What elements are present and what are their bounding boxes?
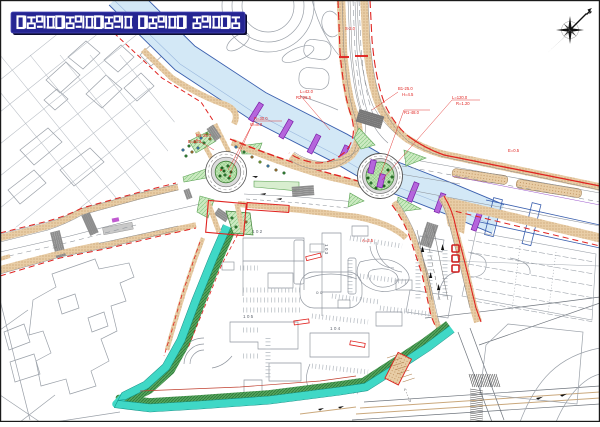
svg-text:R1-35.0: R1-35.0 [196,133,212,138]
svg-text:E=0.5: E=0.5 [508,148,520,153]
svg-text:R=1.20: R=1.20 [456,101,470,106]
svg-text:R=30.0: R=30.0 [254,116,268,121]
svg-text:1 0 2: 1 0 2 [252,229,263,234]
svg-text:1 0 5: 1 0 5 [243,314,254,319]
svg-text:o o: o o [316,290,323,295]
svg-text:L=120.0: L=120.0 [452,95,468,100]
svg-text:R1-48.0: R1-48.0 [404,110,420,115]
svg-text:S-2.0: S-2.0 [345,26,356,31]
svg-text:A=3.5: A=3.5 [362,238,374,243]
svg-text:L=42.0: L=42.0 [300,89,314,94]
svg-text:1 0 3: 1 0 3 [324,244,329,255]
svg-text:H=4.5: H=4.5 [402,92,414,97]
svg-text:B1-25.0: B1-25.0 [398,86,413,91]
svg-text:1 0 4: 1 0 4 [330,326,341,331]
